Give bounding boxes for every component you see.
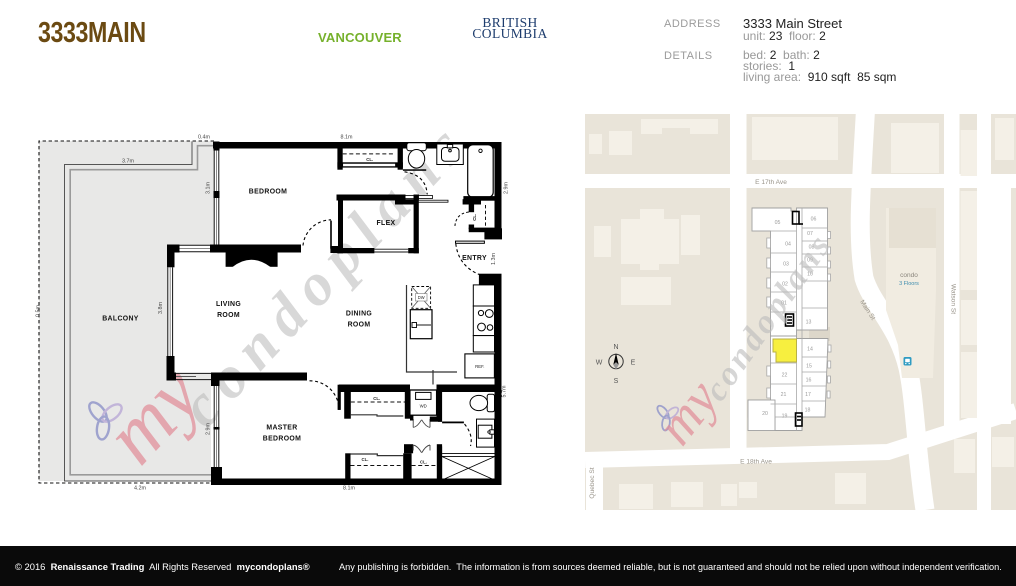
svg-text:CL.: CL. <box>373 396 380 401</box>
svg-text:22: 22 <box>782 373 788 379</box>
svg-text:0.4m: 0.4m <box>198 135 210 141</box>
svg-text:N: N <box>613 344 618 351</box>
svg-text:Quebec St: Quebec St <box>589 467 596 498</box>
svg-text:ENTRY: ENTRY <box>462 255 487 262</box>
svg-text:E 17th Ave: E 17th Ave <box>755 179 787 186</box>
svg-text:REF.: REF. <box>475 364 484 369</box>
svg-text:17: 17 <box>805 392 811 398</box>
svg-text:MASTER: MASTER <box>266 425 297 432</box>
svg-text:13: 13 <box>806 320 812 326</box>
svg-text:20: 20 <box>762 411 768 417</box>
svg-text:E: E <box>631 360 636 367</box>
svg-text:LIVING: LIVING <box>216 301 241 308</box>
svg-text:3 Floors: 3 Floors <box>899 281 919 287</box>
svg-text:FLEX: FLEX <box>376 220 395 227</box>
svg-text:19: 19 <box>782 414 788 420</box>
svg-text:3.1m: 3.1m <box>206 181 212 193</box>
svg-text:W: W <box>596 360 603 367</box>
svg-text:15: 15 <box>806 364 812 370</box>
svg-text:CL.: CL. <box>366 157 373 162</box>
svg-text:3.8m: 3.8m <box>158 301 164 313</box>
svg-text:18: 18 <box>805 408 811 414</box>
svg-text:21: 21 <box>781 392 787 398</box>
svg-text:CL.: CL. <box>472 214 477 221</box>
svg-text:04: 04 <box>785 242 791 248</box>
svg-text:06: 06 <box>811 217 817 223</box>
svg-text:condo: condo <box>900 272 918 279</box>
svg-text:1.3m: 1.3m <box>491 252 497 264</box>
svg-text:BALCONY: BALCONY <box>102 316 139 323</box>
svg-text:ROOM: ROOM <box>348 322 371 329</box>
svg-text:DW: DW <box>418 295 425 300</box>
svg-text:S: S <box>614 378 619 385</box>
svg-text:14: 14 <box>807 347 813 353</box>
svg-text:CL.: CL. <box>420 460 427 465</box>
svg-text:DINING: DINING <box>346 311 372 318</box>
svg-text:16: 16 <box>806 378 812 384</box>
svg-text:WD: WD <box>420 404 427 409</box>
svg-text:8.1m: 8.1m <box>341 135 353 141</box>
svg-text:BEDROOM: BEDROOM <box>263 436 301 443</box>
svg-text:BEDROOM: BEDROOM <box>249 189 287 196</box>
svg-text:2.9m: 2.9m <box>504 181 510 193</box>
svg-text:0.5m: 0.5m <box>36 304 42 316</box>
svg-text:3.7m: 3.7m <box>122 159 134 165</box>
svg-text:8.1m: 8.1m <box>343 486 355 492</box>
svg-text:ROOM: ROOM <box>217 312 240 319</box>
svg-text:5.7m: 5.7m <box>502 385 508 397</box>
svg-text:05: 05 <box>775 220 781 226</box>
svg-text:4.2m: 4.2m <box>134 486 146 492</box>
svg-text:Watson St: Watson St <box>950 284 957 314</box>
svg-text:E 18th Ave: E 18th Ave <box>740 459 772 466</box>
svg-text:2.9m: 2.9m <box>206 422 212 434</box>
svg-text:CL.: CL. <box>362 457 369 462</box>
